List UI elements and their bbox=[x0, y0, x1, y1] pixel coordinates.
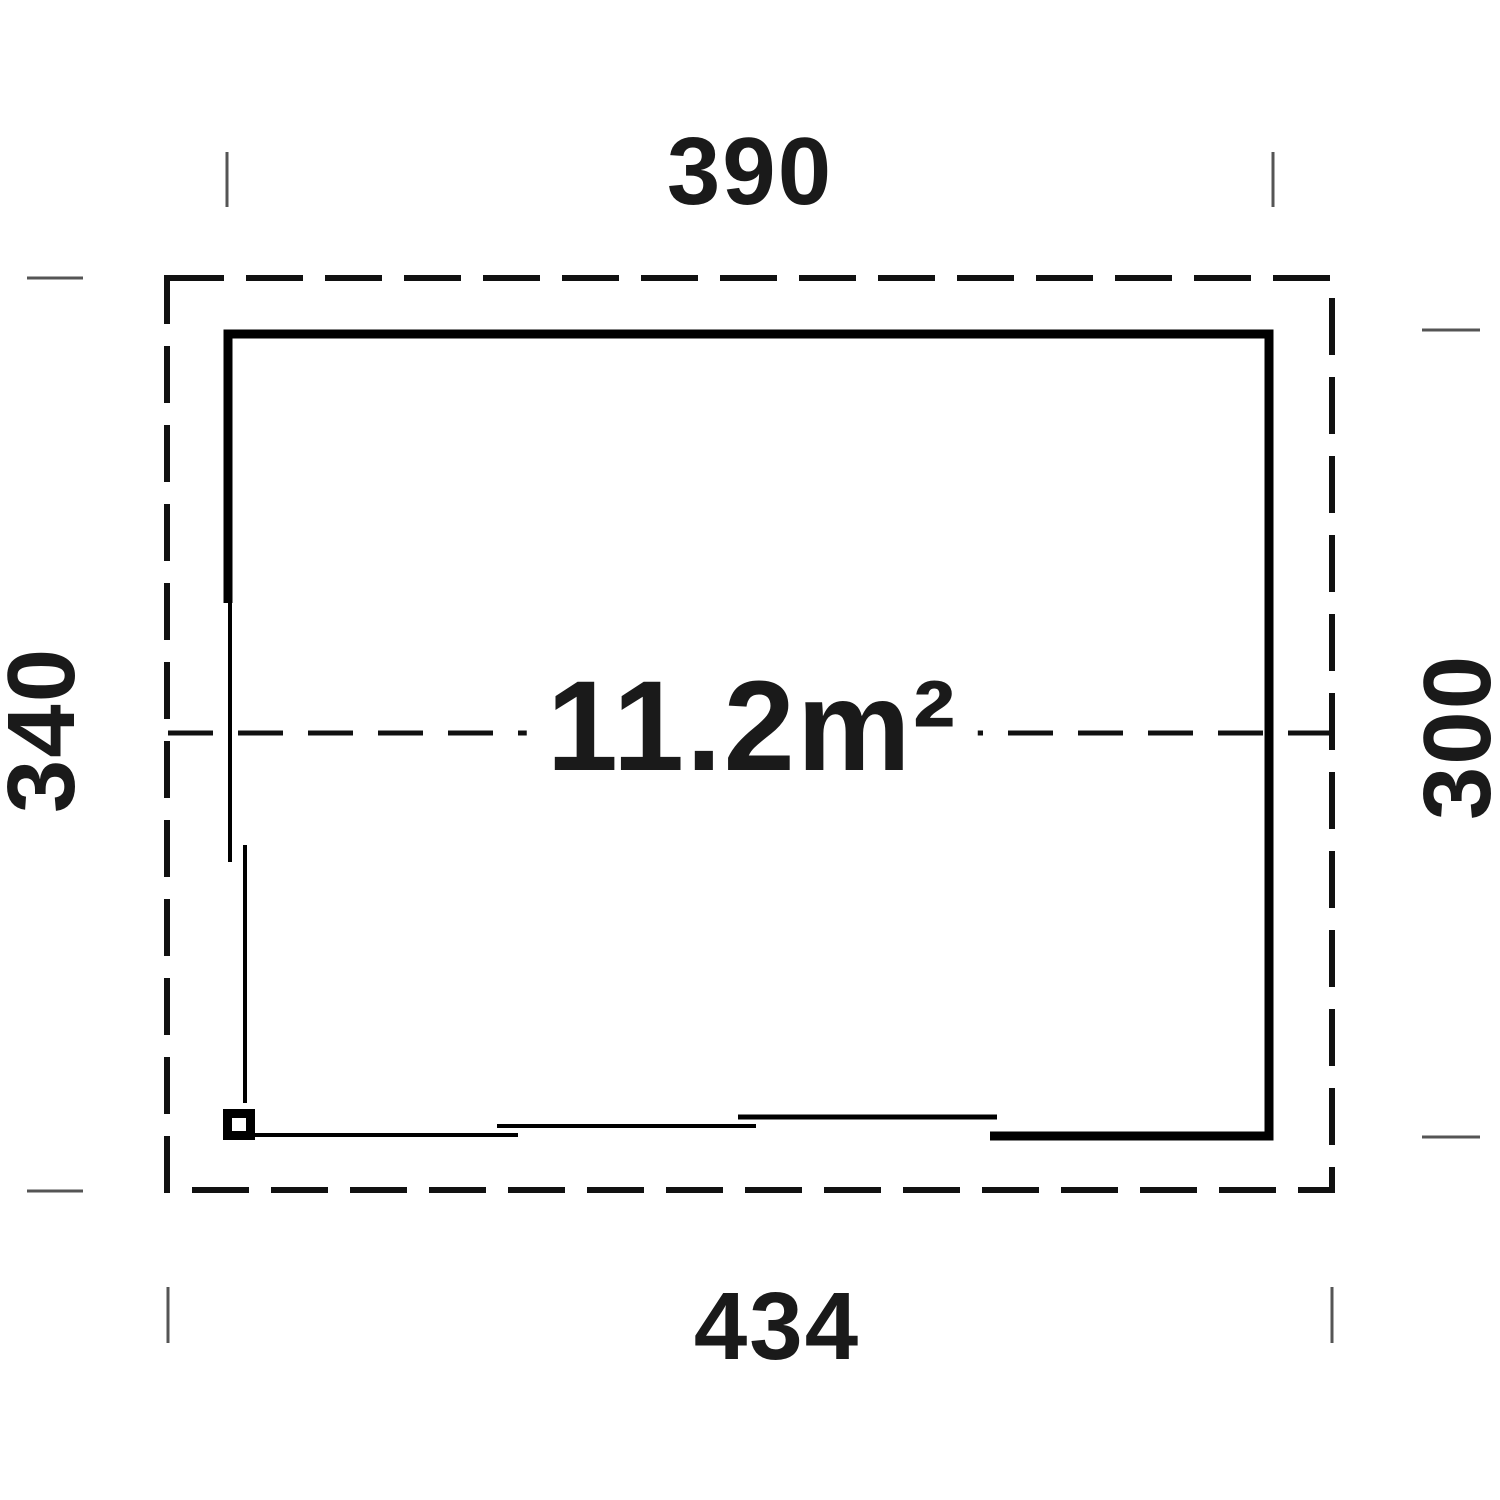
dimension-label-bottom: 434 bbox=[694, 1279, 860, 1375]
dimension-label-top: 390 bbox=[667, 124, 833, 220]
floor-area-label: 11.2m² bbox=[527, 663, 978, 791]
dimension-label-left: 340 bbox=[0, 647, 90, 813]
corner-post-square bbox=[228, 1114, 251, 1136]
dimension-label-right: 300 bbox=[1410, 654, 1500, 820]
floor-plan-canvas: 390 340 300 434 11.2m² bbox=[0, 0, 1500, 1500]
